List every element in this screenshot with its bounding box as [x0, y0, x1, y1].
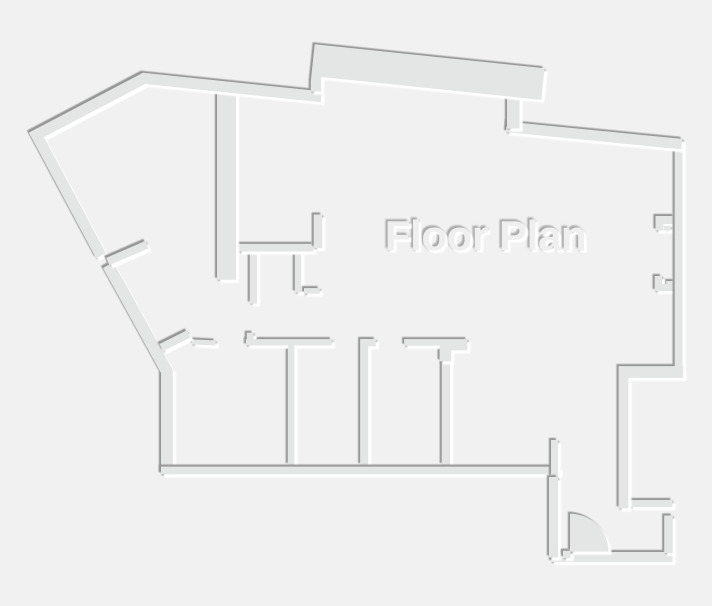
svg-text:Floor Plan: Floor Plan [385, 212, 586, 259]
